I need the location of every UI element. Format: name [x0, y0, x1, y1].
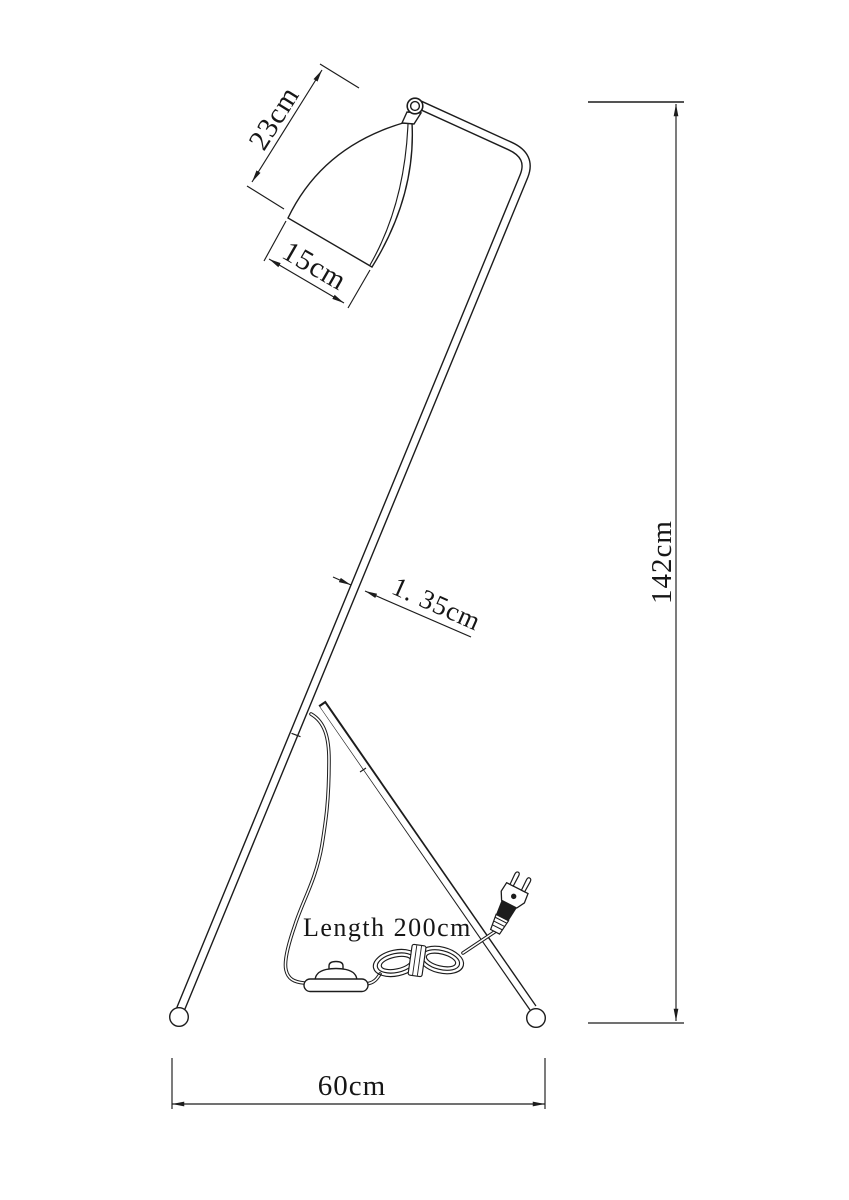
technical-drawing-canvas: 23cm 15cm 1. 35cm 142cm 60cm — [0, 0, 849, 1200]
power-cord — [285, 714, 380, 984]
left-ball-foot — [170, 1008, 189, 1027]
coil-wrap-band — [408, 944, 426, 977]
shade-pivot-joint — [402, 98, 423, 124]
dim-tube-diameter-label: 1. 35cm — [388, 571, 486, 637]
extension-line — [320, 64, 359, 88]
cord-length-label: Length 200cm — [303, 913, 472, 942]
dim-base-width-label: 60cm — [318, 1070, 386, 1102]
leader-line — [333, 577, 351, 585]
switch-base — [304, 979, 368, 992]
plug-pin-left — [510, 871, 520, 886]
dim-base-width: 60cm — [172, 1058, 545, 1109]
power-plug — [484, 869, 536, 937]
extension-line — [348, 270, 370, 308]
plug-pin-right — [521, 877, 531, 892]
right-ball-foot — [527, 1009, 546, 1028]
rear-leg — [322, 703, 533, 1008]
dim-overall-height: 142cm — [588, 102, 684, 1023]
extension-line — [247, 186, 284, 209]
dim-overall-height-label: 142cm — [646, 520, 678, 604]
foot-switch — [304, 962, 368, 992]
pivot-axle — [411, 102, 420, 111]
dim-shade-height-label: 23cm — [243, 81, 306, 156]
drawing-page: 23cm 15cm 1. 35cm 142cm 60cm — [0, 0, 849, 1200]
